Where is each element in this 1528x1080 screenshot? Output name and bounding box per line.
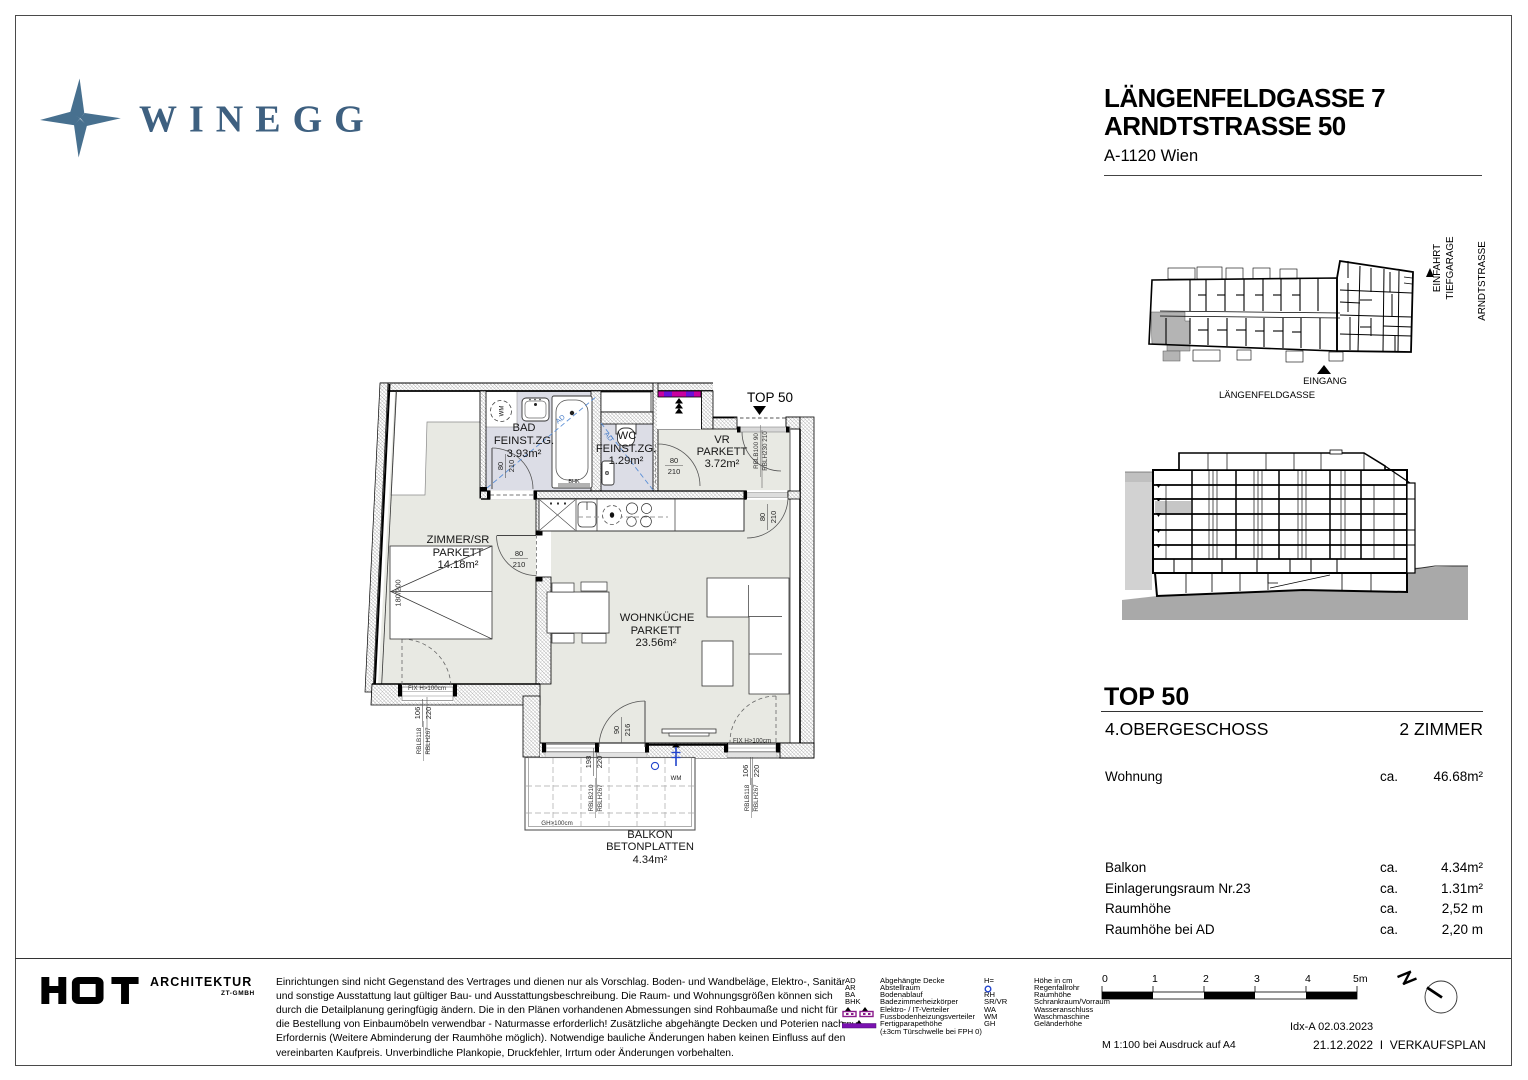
svg-text:RBLB118: RBLB118 xyxy=(744,784,751,811)
svg-text:3.93m²: 3.93m² xyxy=(507,448,542,460)
svg-text:BAD: BAD xyxy=(512,422,535,434)
svg-text:5m: 5m xyxy=(1353,973,1368,985)
svg-text:180/200: 180/200 xyxy=(394,579,403,606)
svg-text:GH>100cm: GH>100cm xyxy=(541,820,572,827)
svg-text:3: 3 xyxy=(1254,973,1260,985)
svg-text:216: 216 xyxy=(623,724,632,737)
svg-text:80: 80 xyxy=(758,513,767,521)
svg-text:FIX H>100cm: FIX H>100cm xyxy=(408,685,446,692)
svg-text:RBLB118: RBLB118 xyxy=(416,727,423,754)
svg-text:PARKETT: PARKETT xyxy=(433,547,484,559)
svg-text:80: 80 xyxy=(496,462,505,470)
svg-text:210: 210 xyxy=(668,467,681,476)
svg-text:210: 210 xyxy=(513,560,526,569)
svg-text:220: 220 xyxy=(595,756,604,769)
svg-text:80: 80 xyxy=(670,456,678,465)
svg-text:RBLH267: RBLH267 xyxy=(753,784,760,812)
svg-text:4.34m²: 4.34m² xyxy=(633,854,668,866)
svg-text:ARNDTSTRASSE: ARNDTSTRASSE xyxy=(1477,241,1488,321)
svg-text:FEINST.ZG.: FEINST.ZG. xyxy=(494,435,554,447)
svg-text:90: 90 xyxy=(612,726,621,734)
svg-text:PARKETT: PARKETT xyxy=(697,446,748,458)
svg-text:TIEFGARAGE: TIEFGARAGE xyxy=(1445,236,1456,300)
svg-text:VR: VR xyxy=(714,434,730,446)
svg-text:WC: WC xyxy=(618,430,637,442)
svg-text:RBLH267: RBLH267 xyxy=(425,727,432,755)
svg-text:BETONPLATTEN: BETONPLATTEN xyxy=(606,841,694,853)
svg-text:RBLH267: RBLH267 xyxy=(597,784,604,812)
svg-text:EINGANG: EINGANG xyxy=(1303,376,1347,387)
svg-text:PARKETT: PARKETT xyxy=(631,625,682,637)
svg-text:FIX H>100cm: FIX H>100cm xyxy=(733,738,771,745)
svg-text:210: 210 xyxy=(769,511,778,524)
svg-text:220: 220 xyxy=(752,765,761,778)
svg-text:220: 220 xyxy=(424,707,433,720)
svg-text:3.72m²: 3.72m² xyxy=(705,458,740,470)
svg-text:FEINST.ZG.: FEINST.ZG. xyxy=(596,443,656,455)
svg-text:RBLB210: RBLB210 xyxy=(588,784,595,811)
svg-text:4: 4 xyxy=(1305,973,1311,985)
svg-text:WM: WM xyxy=(500,406,506,417)
svg-text:23.56m²: 23.56m² xyxy=(635,637,676,649)
svg-text:LÄNGENFELDGASSE: LÄNGENFELDGASSE xyxy=(1219,390,1315,401)
svg-text:ARCHITEKTUR: ARCHITEKTUR xyxy=(150,975,252,989)
svg-text:106: 106 xyxy=(413,707,422,720)
svg-text:14.18m²: 14.18m² xyxy=(437,559,478,571)
svg-text:RBLB100 90: RBLB100 90 xyxy=(753,433,760,469)
svg-text:198: 198 xyxy=(584,756,593,769)
svg-text:1.29m²: 1.29m² xyxy=(609,455,644,467)
svg-text:1: 1 xyxy=(1152,973,1158,985)
svg-text:WM: WM xyxy=(671,776,682,782)
svg-text:TOP 50: TOP 50 xyxy=(747,390,793,405)
svg-text:RBLH230 210: RBLH230 210 xyxy=(762,431,769,471)
svg-text:WINEGG: WINEGG xyxy=(139,99,376,141)
svg-text:BALKON: BALKON xyxy=(627,829,672,841)
svg-text:2: 2 xyxy=(1203,973,1209,985)
svg-text:210: 210 xyxy=(507,460,516,473)
svg-text:ZIMMER/SR: ZIMMER/SR xyxy=(427,534,490,546)
svg-text:WOHNKÜCHE: WOHNKÜCHE xyxy=(620,612,695,624)
svg-text:0: 0 xyxy=(1102,973,1108,985)
svg-text:106: 106 xyxy=(741,765,750,778)
svg-text:EINFAHRT: EINFAHRT xyxy=(1432,244,1443,292)
svg-text:ZT-GMBH: ZT-GMBH xyxy=(221,990,255,997)
svg-text:80: 80 xyxy=(515,549,523,558)
svg-text:BHK: BHK xyxy=(568,479,580,485)
